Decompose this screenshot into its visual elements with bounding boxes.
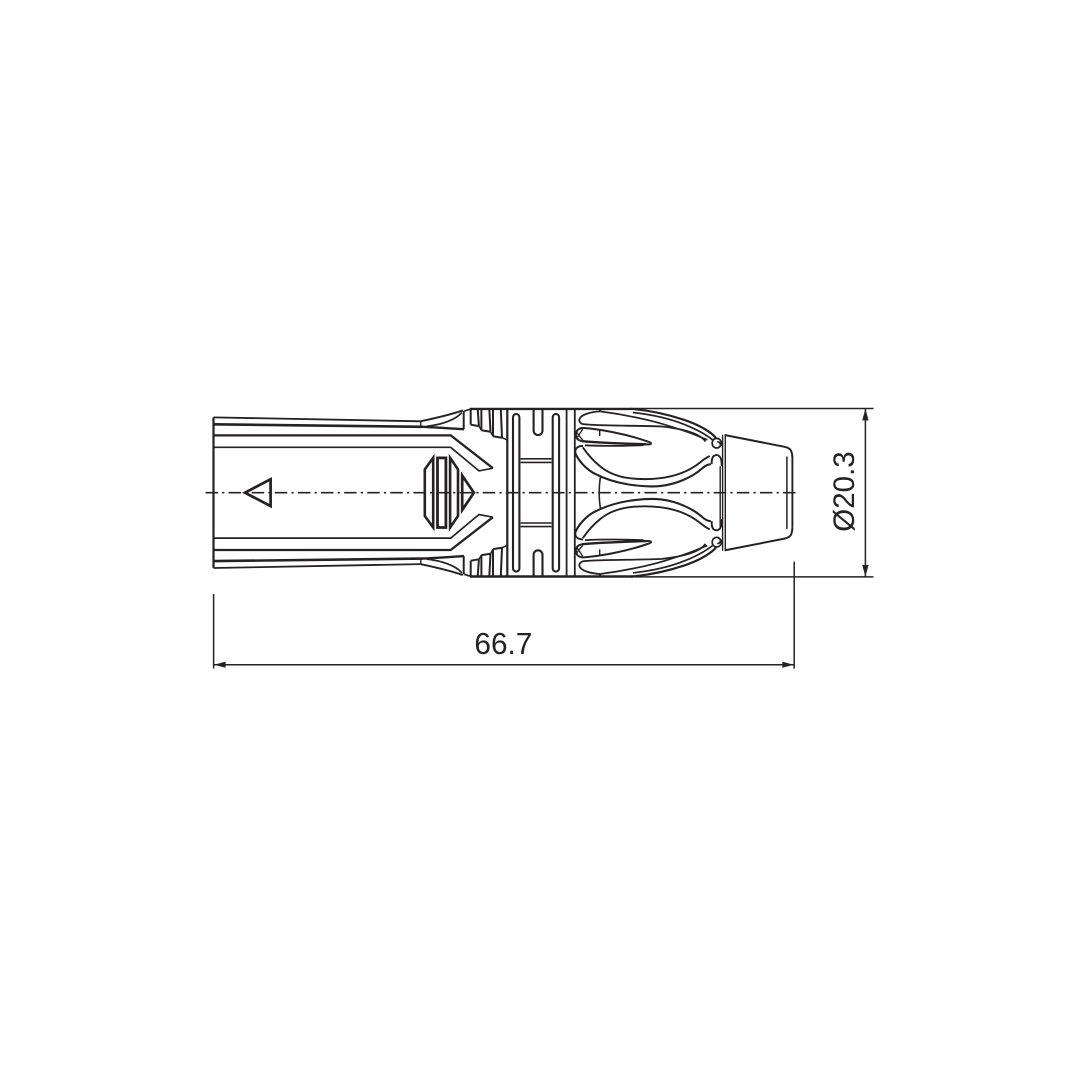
svg-text:Ø20.3: Ø20.3 xyxy=(828,451,861,531)
svg-text:66.7: 66.7 xyxy=(474,627,532,661)
